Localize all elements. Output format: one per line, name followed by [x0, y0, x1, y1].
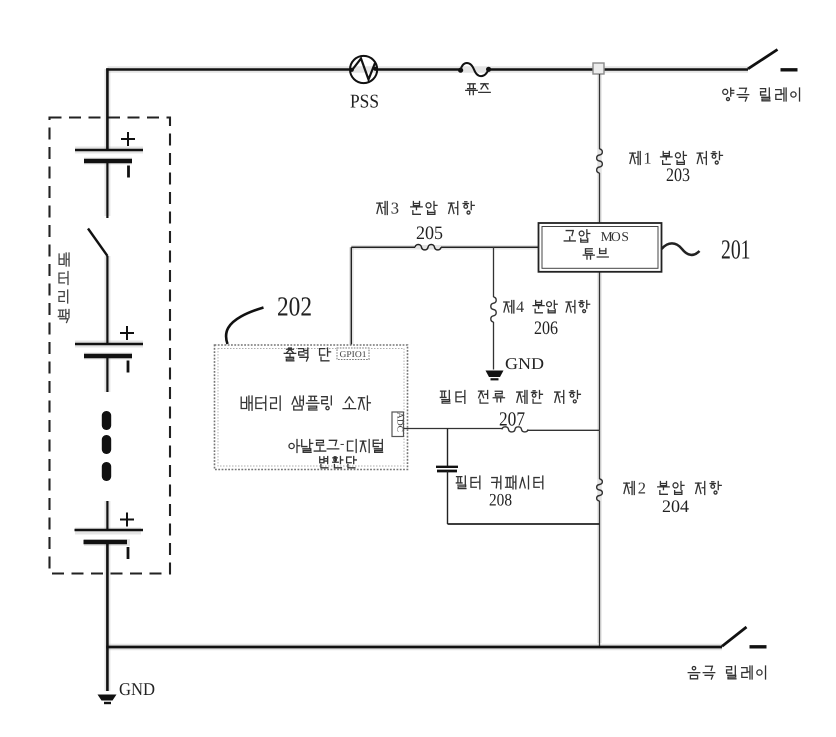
- svg-text:203: 203: [666, 165, 690, 186]
- svg-text:206: 206: [534, 318, 558, 339]
- svg-text:3: 3: [391, 199, 399, 218]
- svg-text:GND: GND: [119, 679, 155, 699]
- svg-text:207: 207: [499, 409, 525, 431]
- svg-text:2: 2: [638, 479, 646, 498]
- svg-text:1: 1: [643, 149, 651, 168]
- svg-text:4: 4: [516, 299, 524, 316]
- svg-text:201: 201: [721, 234, 751, 265]
- svg-text:204: 204: [662, 496, 689, 516]
- svg-text:205: 205: [416, 223, 443, 244]
- svg-text:PSS: PSS: [350, 92, 379, 113]
- svg-text:ADC: ADC: [396, 412, 406, 432]
- svg-text:O: O: [611, 229, 621, 244]
- svg-text:GND: GND: [505, 354, 544, 373]
- svg-text:S: S: [621, 229, 629, 244]
- svg-text:GPIO1: GPIO1: [340, 349, 367, 359]
- svg-text:-: -: [340, 436, 344, 451]
- svg-text:208: 208: [489, 490, 512, 510]
- svg-text:202: 202: [277, 291, 312, 322]
